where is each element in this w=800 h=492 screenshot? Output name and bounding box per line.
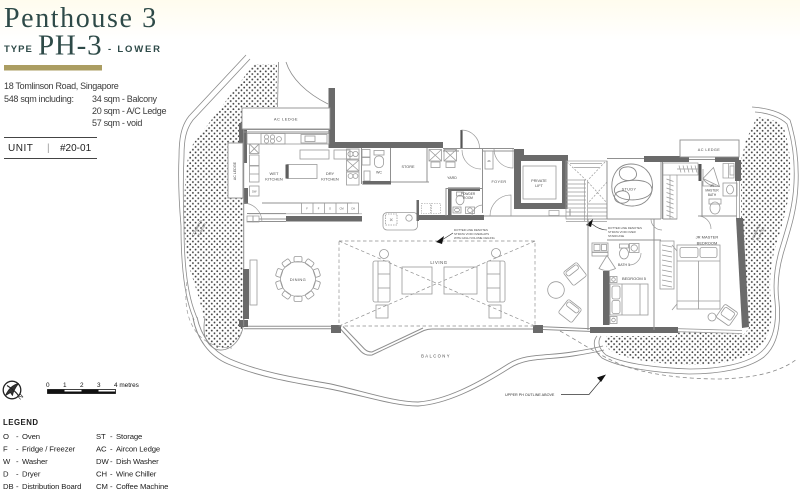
svg-text:Fridge / Freezer: Fridge / Freezer bbox=[22, 445, 76, 454]
svg-text:YARD: YARD bbox=[447, 176, 457, 180]
svg-text:JR MASTER: JR MASTER bbox=[696, 235, 719, 240]
svg-text:34 sqm - Balcony: 34 sqm - Balcony bbox=[92, 94, 158, 104]
svg-text:DW: DW bbox=[252, 190, 257, 194]
svg-text:LIFT: LIFT bbox=[535, 184, 543, 188]
svg-text:-: - bbox=[110, 457, 113, 466]
svg-text:MASTER: MASTER bbox=[705, 189, 719, 193]
svg-text:-: - bbox=[110, 432, 113, 441]
svg-text:AC LEDGE: AC LEDGE bbox=[698, 148, 720, 152]
svg-text:BALCONY: BALCONY bbox=[421, 354, 451, 359]
svg-text:ST: ST bbox=[96, 432, 106, 441]
svg-text:Distribution Board: Distribution Board bbox=[22, 482, 81, 491]
svg-text:ROOM: ROOM bbox=[463, 196, 473, 200]
svg-text:#20-01: #20-01 bbox=[60, 143, 92, 154]
svg-text:18 Tomlinson Road, Singapore: 18 Tomlinson Road, Singapore bbox=[4, 81, 119, 91]
svg-text:-: - bbox=[16, 470, 19, 479]
svg-text:2: 2 bbox=[80, 382, 84, 389]
svg-text:-: - bbox=[16, 482, 19, 491]
svg-text:-: - bbox=[110, 470, 113, 479]
svg-text:-: - bbox=[16, 432, 19, 441]
svg-text:UNIT: UNIT bbox=[8, 143, 33, 154]
svg-text:D: D bbox=[3, 470, 9, 479]
svg-text:57 sqm - void: 57 sqm - void bbox=[92, 118, 142, 128]
svg-text:3: 3 bbox=[97, 382, 101, 389]
svg-text:WITH HIGH VOLUME CEILING: WITH HIGH VOLUME CEILING bbox=[454, 236, 496, 240]
svg-text:0: 0 bbox=[46, 382, 50, 389]
svg-text:|: | bbox=[47, 143, 50, 154]
svg-text:DRY: DRY bbox=[326, 171, 335, 176]
svg-text:BATH: BATH bbox=[708, 193, 717, 197]
svg-text:BEDROOM 5: BEDROOM 5 bbox=[622, 276, 647, 281]
svg-text:- LOWER: - LOWER bbox=[108, 44, 162, 55]
svg-text:20 sqm - A/C Ledge: 20 sqm - A/C Ledge bbox=[92, 106, 166, 116]
svg-text:STAIRCASE: STAIRCASE bbox=[608, 234, 624, 238]
svg-text:W: W bbox=[3, 457, 11, 466]
svg-text:LIVING: LIVING bbox=[430, 260, 447, 265]
svg-text:LEGEND: LEGEND bbox=[3, 418, 39, 427]
svg-text:-: - bbox=[16, 457, 19, 466]
svg-text:CH: CH bbox=[351, 207, 355, 211]
svg-text:Dryer: Dryer bbox=[22, 470, 41, 479]
svg-text:O: O bbox=[3, 432, 9, 441]
svg-text:4 metres: 4 metres bbox=[114, 382, 139, 389]
svg-text:CM: CM bbox=[339, 207, 343, 211]
svg-text:F: F bbox=[3, 445, 8, 454]
svg-text:KITCHEN: KITCHEN bbox=[321, 177, 339, 182]
svg-text:db: db bbox=[487, 159, 491, 163]
svg-text:Coffee Machine: Coffee Machine bbox=[116, 482, 168, 491]
svg-text:STUDY: STUDY bbox=[622, 188, 637, 192]
svg-text:STORE: STORE bbox=[401, 165, 414, 169]
svg-text:JR: JR bbox=[710, 184, 715, 188]
svg-text:548 sqm including:: 548 sqm including: bbox=[4, 94, 74, 104]
svg-text:DW: DW bbox=[96, 457, 109, 466]
svg-text:Wine Chiller: Wine Chiller bbox=[116, 470, 157, 479]
svg-text:-: - bbox=[110, 445, 113, 454]
svg-text:FOYER: FOYER bbox=[491, 180, 506, 184]
svg-text:UPPER PH OUTLINE ABOVE: UPPER PH OUTLINE ABOVE bbox=[505, 393, 555, 397]
svg-text:-: - bbox=[110, 482, 113, 491]
svg-text:CM: CM bbox=[96, 482, 108, 491]
svg-text:Oven: Oven bbox=[22, 432, 40, 441]
svg-text:Aircon Ledge: Aircon Ledge bbox=[116, 445, 160, 454]
svg-text:KITCHEN: KITCHEN bbox=[265, 177, 283, 182]
svg-text:DB: DB bbox=[3, 482, 13, 491]
svg-text:BATH 5: BATH 5 bbox=[618, 263, 630, 267]
svg-text:PRIVATE: PRIVATE bbox=[531, 179, 547, 183]
svg-text:TYPE: TYPE bbox=[4, 44, 33, 55]
svg-text:WC: WC bbox=[376, 171, 382, 175]
svg-text:WET: WET bbox=[270, 171, 279, 176]
svg-text:Washer: Washer bbox=[22, 457, 48, 466]
svg-text:N: N bbox=[17, 393, 25, 402]
svg-text:F: F bbox=[318, 207, 320, 211]
svg-text:AC LEDGE: AC LEDGE bbox=[274, 117, 298, 122]
svg-text:F: F bbox=[306, 207, 308, 211]
svg-text:AC LEDGE: AC LEDGE bbox=[233, 161, 237, 180]
svg-text:PH-3: PH-3 bbox=[38, 30, 102, 62]
svg-text:CH: CH bbox=[96, 470, 107, 479]
svg-text:1: 1 bbox=[63, 382, 67, 389]
svg-text:Storage: Storage bbox=[116, 432, 142, 441]
svg-text:Dish Washer: Dish Washer bbox=[116, 457, 159, 466]
svg-text:-: - bbox=[16, 445, 19, 454]
svg-text:AC: AC bbox=[96, 445, 107, 454]
svg-text:O: O bbox=[329, 207, 331, 211]
svg-text:DINING: DINING bbox=[290, 277, 306, 282]
